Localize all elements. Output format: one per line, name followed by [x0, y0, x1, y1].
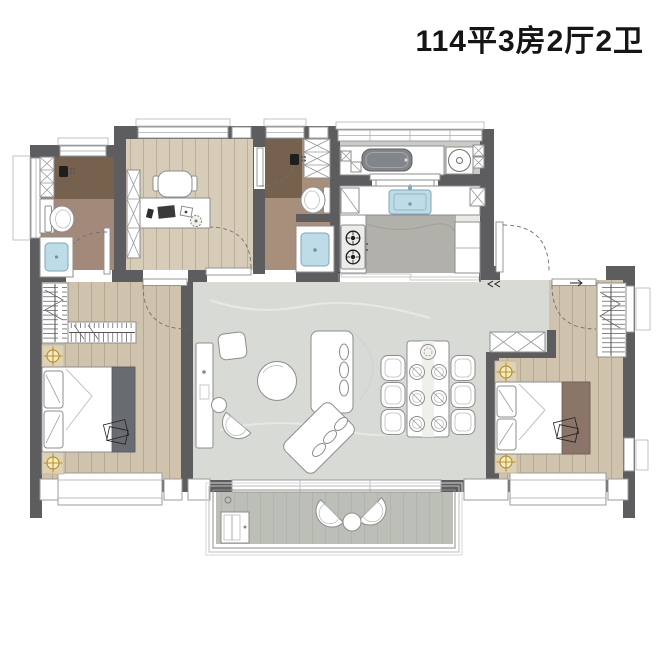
kitchen-counter-right	[455, 222, 480, 273]
wardrobe	[597, 283, 626, 357]
pillow	[497, 419, 516, 450]
dining-chair	[381, 410, 405, 435]
master-bathroom-door-leaf	[104, 228, 110, 274]
pillow	[44, 411, 63, 448]
bed-runner	[562, 382, 590, 454]
side-stool	[212, 398, 227, 413]
ottoman	[218, 331, 248, 360]
window-frame	[58, 138, 108, 145]
entry-door-leaf	[496, 222, 503, 272]
centerpiece	[421, 345, 436, 360]
tv-cabinet	[196, 343, 213, 448]
floor-plan-canvas	[0, 0, 660, 660]
dining-area	[381, 341, 475, 437]
coffee-table	[258, 362, 297, 401]
dining-chair	[451, 383, 475, 408]
clothes-rack	[68, 322, 136, 343]
dining-chair	[451, 356, 475, 381]
light-crosshair-icon	[495, 361, 517, 383]
place-setting	[410, 391, 425, 406]
dining-chair	[381, 383, 405, 408]
stove-burner-icon	[346, 231, 360, 245]
balcony-side-table	[343, 513, 361, 531]
bed	[42, 367, 135, 452]
balcony-cabinet	[221, 512, 249, 543]
dining-chair	[381, 356, 405, 381]
step	[376, 180, 434, 186]
entry-door-opening	[500, 266, 552, 280]
light-crosshair-icon	[42, 452, 64, 474]
wardrobe	[42, 283, 68, 343]
dining-chair	[451, 410, 475, 435]
study-door-leaf	[206, 268, 251, 275]
place-setting	[410, 417, 425, 432]
bedroom-right-door-leaf	[552, 279, 596, 286]
bedroom-right-bay-window	[510, 473, 606, 505]
entry-door-swing-arc	[503, 225, 549, 271]
floor-plan-page: 114平3房2厅2卫	[0, 0, 660, 660]
entry-foyer	[490, 332, 545, 352]
toilet-icon	[45, 206, 74, 232]
light-crosshair-icon	[42, 345, 64, 367]
bedroom-left-bay-window	[58, 473, 162, 505]
laptop-icon	[157, 205, 175, 219]
place-setting	[432, 365, 447, 380]
bed-runner	[112, 367, 135, 452]
office-chair	[158, 171, 192, 197]
step	[370, 174, 440, 180]
washing-machine-icon	[446, 147, 473, 174]
shoe-cabinet	[490, 332, 545, 352]
place-setting	[410, 365, 425, 380]
bed	[495, 382, 590, 454]
bedroom-left-door-leaf	[143, 279, 187, 286]
second-bathroom-door-leaf	[257, 148, 263, 186]
toilet-icon	[301, 187, 330, 213]
stove-burner-icon	[346, 250, 360, 264]
place-setting	[432, 417, 447, 432]
place-setting	[432, 391, 447, 406]
